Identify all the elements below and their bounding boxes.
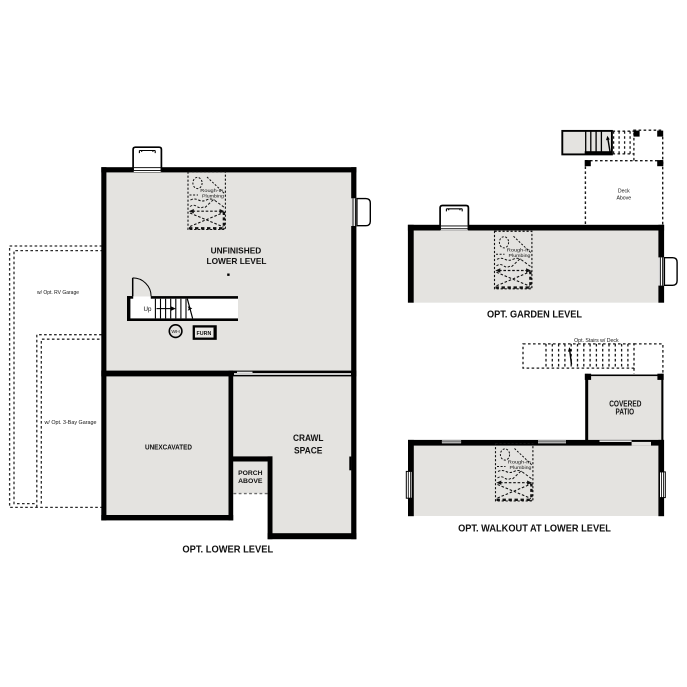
- svg-text:w/ Opt. 3-Bay Garage: w/ Opt. 3-Bay Garage: [44, 420, 97, 426]
- svg-text:Deck: Deck: [618, 189, 630, 195]
- svg-text:CRAWL: CRAWL: [293, 433, 324, 443]
- svg-text:FURN: FURN: [197, 331, 212, 337]
- svg-text:PATIO: PATIO: [616, 407, 635, 416]
- svg-text:w/ Opt. RV Garage: w/ Opt. RV Garage: [36, 290, 79, 296]
- svg-text:LOWER LEVEL: LOWER LEVEL: [207, 256, 267, 266]
- svg-text:WH: WH: [171, 329, 179, 334]
- svg-text:SPACE: SPACE: [294, 445, 323, 455]
- svg-text:OPT. GARDEN LEVEL: OPT. GARDEN LEVEL: [487, 310, 582, 321]
- svg-text:Opt. Stairs w/ Deck: Opt. Stairs w/ Deck: [574, 338, 619, 344]
- svg-text:UNFINISHED: UNFINISHED: [211, 245, 262, 255]
- svg-text:ABOVE: ABOVE: [238, 478, 263, 485]
- svg-text:PORCH: PORCH: [238, 470, 263, 477]
- svg-text:Up: Up: [144, 306, 152, 313]
- svg-text:UNEXCAVATED: UNEXCAVATED: [145, 443, 192, 452]
- svg-text:OPT. WALKOUT AT LOWER LEVEL: OPT. WALKOUT AT LOWER LEVEL: [458, 523, 611, 534]
- svg-text:Above: Above: [616, 195, 631, 201]
- svg-text:OPT. LOWER LEVEL: OPT. LOWER LEVEL: [182, 544, 273, 555]
